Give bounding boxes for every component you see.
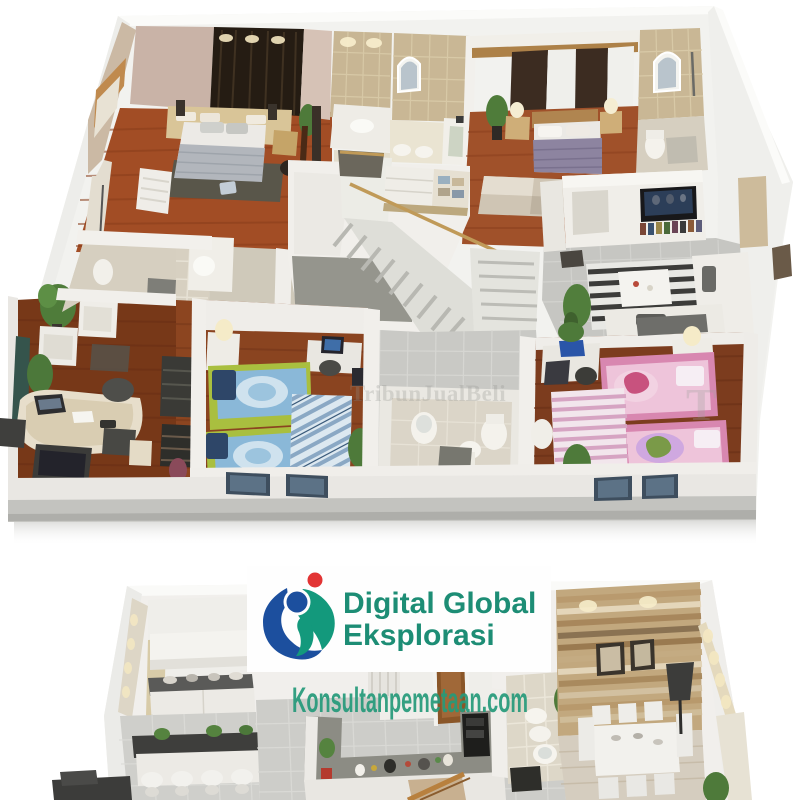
svg-text:Konsultanpemetaan.com: Konsultanpemetaan.com — [292, 681, 528, 720]
svg-text:Digital Global: Digital Global — [343, 587, 536, 620]
svg-text:T: T — [686, 379, 717, 430]
svg-text:Eksplorasi: Eksplorasi — [343, 619, 495, 652]
svg-text:TribunJualBeli: TribunJualBeli — [350, 381, 506, 406]
